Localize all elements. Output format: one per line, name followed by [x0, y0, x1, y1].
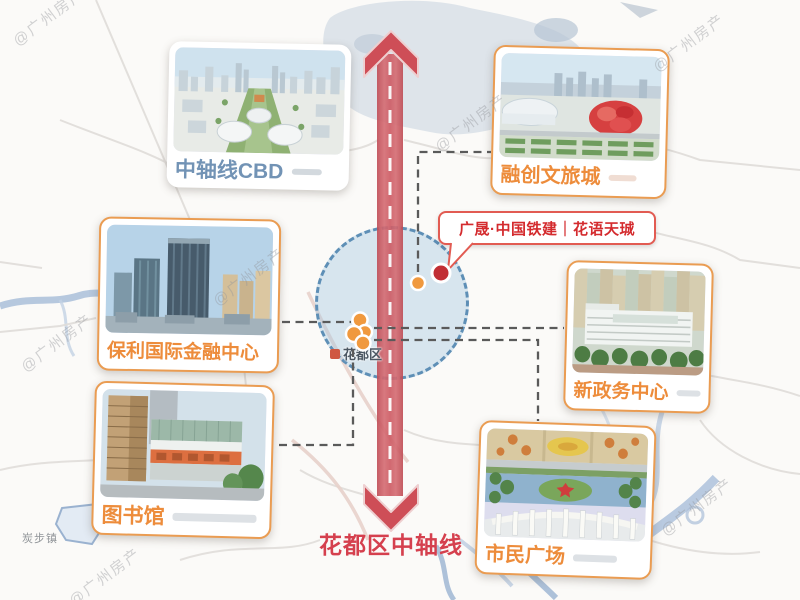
label-dash: [608, 175, 636, 182]
district-icon: [330, 349, 340, 359]
location-map: 中轴线CBD 融创文旅城: [0, 0, 800, 600]
photo-cbd: [173, 47, 345, 155]
district-label-text: 花都区: [343, 344, 382, 363]
photo-plaza: [484, 428, 649, 542]
project-badge: 广晟·中国铁建｜花语天珹: [438, 211, 656, 245]
landmark-card-cbd: 中轴线CBD: [166, 41, 351, 191]
landmark-card-gov: 新政务中心: [563, 260, 714, 414]
landmark-card-plaza: 市民广场: [474, 420, 656, 580]
label-dash: [573, 554, 617, 563]
landmark-label-sunac: 融创文旅城: [500, 165, 600, 188]
district-label: 花都区: [330, 344, 382, 363]
label-dash: [676, 390, 700, 397]
landmark-label-library: 图书馆: [101, 504, 165, 527]
label-dash: [291, 169, 321, 176]
photo-poly: [105, 225, 273, 336]
axis-title: 花都区中轴线: [308, 526, 474, 560]
photo-library: [100, 389, 267, 501]
landmark-card-library: 图书馆: [91, 381, 275, 540]
landmark-label-plaza: 市民广场: [485, 544, 566, 567]
landmark-card-sunac: 融创文旅城: [490, 45, 670, 200]
landmark-card-poly: 保利国际金融中心: [97, 216, 282, 373]
central-axis-band: [377, 54, 403, 496]
landmark-label-gov: 新政务中心: [573, 381, 668, 402]
town-label: 炭步镇: [22, 530, 58, 546]
label-dash: [172, 513, 256, 523]
project-badge-label: 广晟·中国铁建｜花语天珹: [459, 218, 635, 239]
landmark-label-cbd: 中轴线CBD: [175, 159, 284, 182]
photo-sunac: [499, 53, 662, 161]
photo-gov: [572, 268, 706, 375]
landmark-label-poly: 保利国际金融中心: [107, 341, 259, 363]
